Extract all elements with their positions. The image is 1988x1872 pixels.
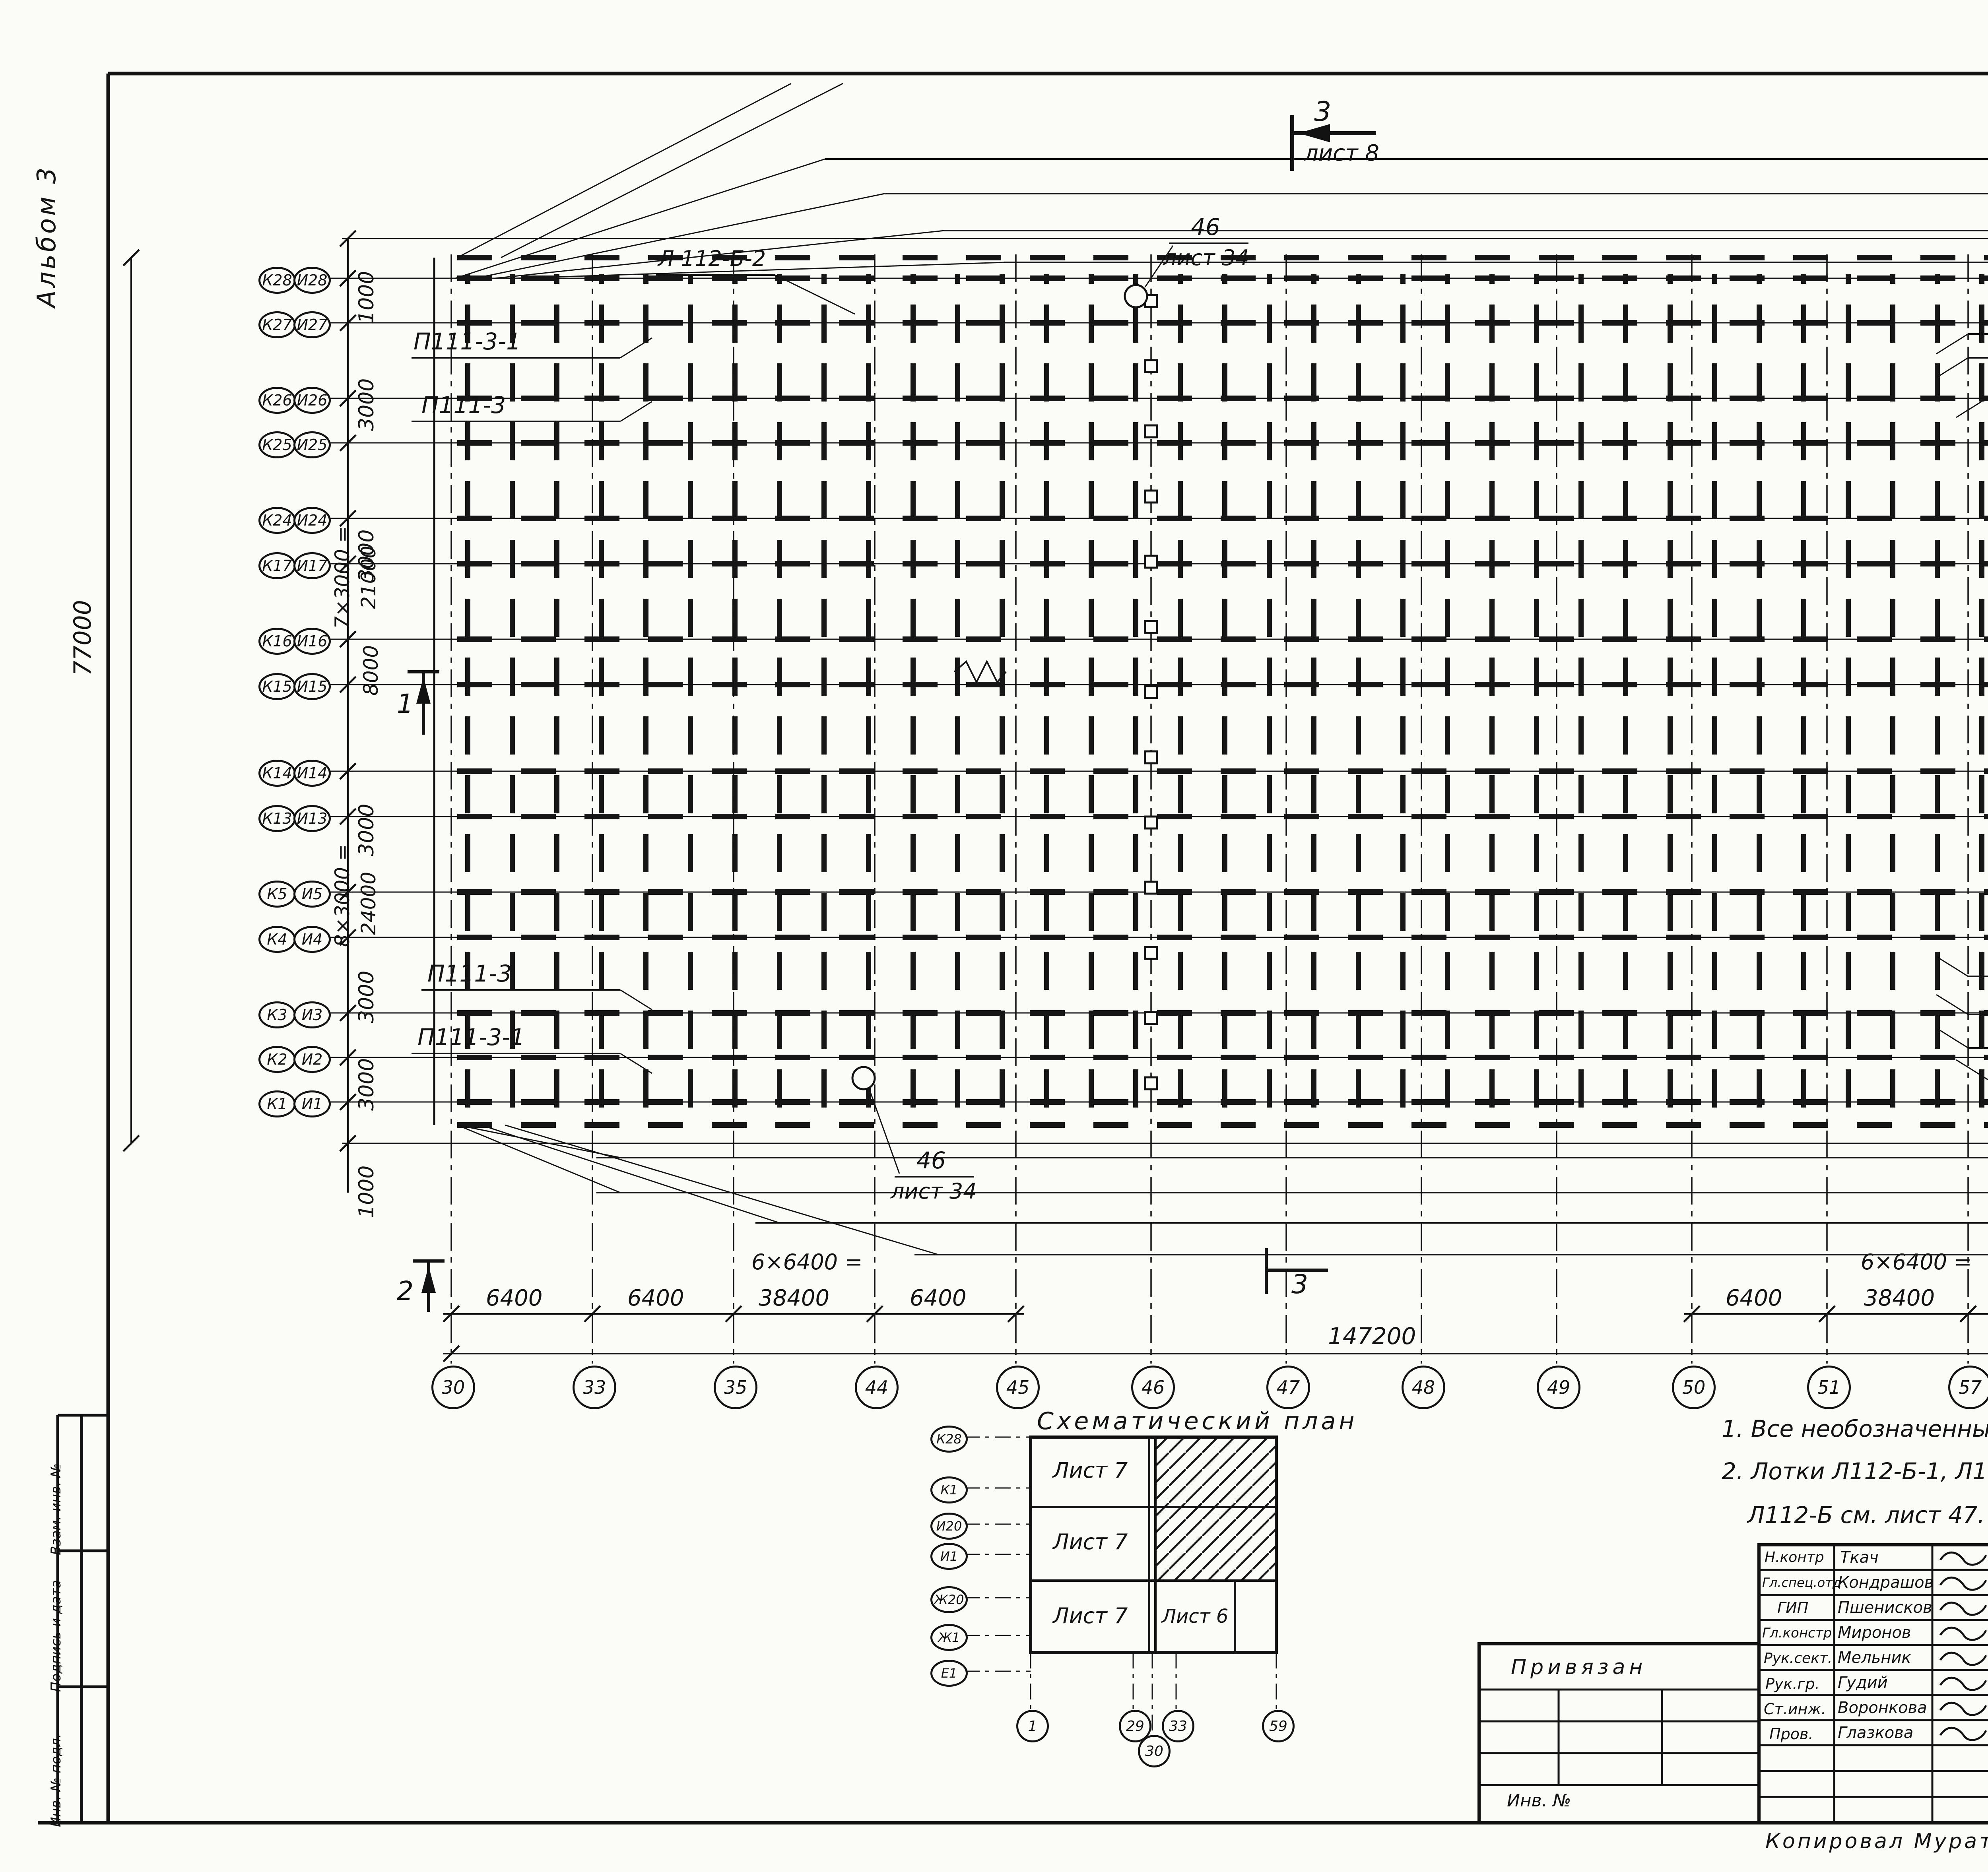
hdim-right-eq: 6×6400 = [1861,1251,1972,1273]
tb-name-1: Кондрашов [1838,1575,1934,1591]
axis-row-label: К5 [267,885,287,903]
margin-strip-top: Взам. инв. № [49,1463,63,1555]
tb-name-2: Пшенисков [1838,1600,1932,1616]
axis-col-label: 49 [1547,1377,1571,1398]
axis-row-label: К15 [262,678,292,695]
schematic-col-label: 1 [1028,1718,1037,1734]
hdim-left-1: 6400 [627,1287,684,1309]
vdim-1000-top: 1000 [356,271,377,324]
axis-col-label: 47 [1277,1377,1300,1398]
hdim-left-eq: 6×6400 = [751,1251,862,1273]
axis-col-1: 33 [573,1366,616,1409]
axis-row-label: К2 [267,1051,287,1068]
section-3-top: 3 [1314,99,1331,126]
mark-p111-3-topleft: П111-3 [421,394,506,417]
axis-row-i-5: И17 [293,552,331,579]
tb-role-3: Гл.констр [1762,1626,1832,1640]
axis-row-label: И13 [297,810,328,827]
schematic-col-0: 1 [1016,1710,1049,1742]
vdim-8x3000: 8×3000 = [332,844,352,947]
hdim-right-0: 6400 [1726,1287,1782,1309]
schematic-cell-list7-2: Лист 7 [1053,1531,1128,1553]
schematic-col-3: 33 [1162,1710,1194,1742]
hdim-right-1: 38400 [1864,1287,1935,1309]
axis-row-label: И2 [302,1051,323,1068]
tb-name-6: Воронкова [1838,1700,1927,1716]
axis-col-0: 30 [431,1366,475,1409]
axis-col-6: 47 [1266,1366,1310,1409]
tb-name-7: Глазкова [1838,1725,1913,1741]
axis-col-label: 46 [1142,1377,1165,1398]
hdim-left-2: 38400 [759,1287,829,1309]
tb-role-4: Рук.сект. [1764,1651,1832,1666]
schematic-cell-list7-1: Лист 7 [1053,1460,1128,1481]
axis-row-label: К28 [262,272,292,289]
axis-row-label: И1 [302,1095,323,1113]
schematic-row-label: Е1 [941,1666,957,1681]
axis-row-k-8: К14 [258,760,296,787]
axis-row-i-13: И2 [293,1046,331,1073]
axis-row-k-4: К24 [258,507,296,534]
axis-col-11: 57 [1948,1366,1988,1409]
section-2-left: 2 [397,1278,414,1304]
schematic-col-label: 30 [1145,1743,1163,1759]
schematic-col-label: 29 [1126,1718,1144,1734]
axis-row-label: И3 [302,1006,323,1024]
mark-p111-3-botleft: П111-3 [427,962,512,985]
axis-row-i-6: И16 [293,628,331,655]
axis-row-k-6: К16 [258,628,296,655]
axis-row-label: И5 [302,885,323,903]
schematic-cell-list6: Лист 6 [1162,1607,1228,1626]
axis-row-k-12: К3 [258,1001,296,1028]
tb-role-1: Гл.спец.отд [1762,1576,1841,1589]
vdim-24000: 24000 [359,872,379,935]
axis-row-i-11: И4 [293,926,331,953]
tb-inv-label: Инв. № [1507,1792,1571,1810]
axis-row-label: К1 [267,1095,287,1113]
tb-role-2: ГИП [1777,1600,1808,1616]
axis-row-label: К14 [262,764,292,782]
axis-col-3: 44 [855,1366,899,1409]
axis-row-k-10: К5 [258,881,296,908]
schematic-row-3: И1 [930,1543,968,1570]
axis-row-i-8: И14 [293,760,331,787]
hdim-total: 147200 [1328,1325,1416,1348]
mark-p111-3-1-topleft: П111-3-1 [414,330,521,353]
axis-col-label: 30 [442,1377,465,1398]
hdim-left-0: 6400 [486,1287,543,1309]
axis-row-i-1: И27 [293,311,331,338]
axis-row-label: К26 [262,392,292,409]
tb-name-3: Миронов [1838,1625,1911,1641]
axis-row-label: К25 [262,436,292,454]
margin-strip-bottom: Инв. № подл. [49,1734,63,1827]
axis-row-i-9: И13 [293,805,331,832]
schematic-row-label: И1 [940,1549,958,1564]
axis-row-label: И25 [297,436,328,454]
vdim-7x3000: 7×3000 = [332,526,352,629]
axis-row-label: К3 [267,1006,287,1024]
vdim-3000-c: 3000 [356,804,377,856]
axis-row-i-7: И15 [293,673,331,700]
margin-strip-middle: Подпись и дата [49,1580,63,1692]
axis-col-label: 48 [1412,1377,1435,1398]
schematic-col-label: 59 [1269,1718,1287,1734]
schematic-row-1: К1 [930,1476,968,1503]
vdim-3000-e: 3000 [356,1058,377,1111]
hdim-left-3: 6400 [910,1287,967,1309]
axis-col-7: 48 [1402,1366,1445,1409]
axis-row-label: И16 [297,632,328,650]
axis-row-label: И17 [297,557,328,574]
axis-row-i-0: И28 [293,267,331,294]
tb-bind-label: Привязан [1511,1657,1646,1678]
schematic-title: Схематический план [1037,1409,1358,1433]
axis-row-k-3: К25 [258,431,296,458]
schematic-cell-list7-3: Лист 7 [1053,1605,1128,1627]
axis-col-label: 50 [1682,1377,1706,1398]
vdim-1000-bot: 1000 [356,1166,377,1218]
axis-row-label: К27 [262,316,292,334]
tb-role-6: Ст.инж. [1764,1701,1826,1717]
mark-p111-3-1-botleft: П111-3-1 [417,1026,525,1049]
vdim-8000: 8000 [361,645,381,696]
axis-col-8: 49 [1537,1366,1580,1409]
axis-row-label: И14 [297,764,328,782]
axis-col-10: 51 [1807,1366,1851,1409]
album-label: Альбом 3 [34,165,60,308]
tb-role-0: Н.контр [1765,1550,1824,1565]
schematic-col-4: 59 [1262,1710,1295,1742]
mark-l112-b-2-topleft: Л 112-Б-2 [658,248,766,270]
schematic-row-label: К28 [936,1432,961,1447]
copied-by: Копировал Муратова [1765,1831,1988,1852]
schematic-row-label: И20 [936,1519,962,1534]
axis-row-k-5: К17 [258,552,296,579]
axis-col-label: 35 [724,1377,747,1398]
schematic-row-0: К28 [930,1426,968,1453]
schematic-row-label: Ж20 [934,1592,964,1607]
axis-col-label: 44 [865,1377,889,1398]
node-ref-top-sheet: лист 34 [1163,247,1249,269]
axis-col-5: 46 [1131,1366,1175,1409]
axis-row-i-3: И25 [293,431,331,458]
schematic-row-label: К1 [940,1482,957,1498]
note-1: 1. Все необозначенные на схеме стойки ма… [1722,1417,1988,1440]
axis-row-k-13: К2 [258,1046,296,1073]
section-3-top-sheet: лист 8 [1304,142,1379,165]
schematic-col-label: 33 [1169,1718,1187,1734]
node-ref-top-num: 46 [1191,215,1220,239]
tb-name-0: Ткач [1840,1550,1879,1565]
node-ref-bot-sheet: лист 34 [891,1181,977,1202]
vdim-21000: 21000 [359,546,379,609]
drawing-sheet: 7 Альбом 3 Взам. инв. № Подпись и дата И… [0,0,1988,1872]
schematic-col-2: 30 [1138,1735,1171,1767]
axis-row-label: И27 [297,316,328,334]
axis-col-4: 45 [996,1366,1040,1409]
axis-row-label: И4 [302,931,323,948]
axis-row-label: К4 [267,931,287,948]
vdim-77000: 77000 [71,600,95,676]
schematic-row-5: Ж1 [930,1624,968,1651]
note-2: 2. Лотки Л112-Б-1, Л112-Б-2 выполнить из… [1722,1460,1988,1483]
schematic-row-6: Е1 [930,1660,968,1687]
axis-row-k-14: К1 [258,1090,296,1117]
schematic-row-2: И20 [930,1513,968,1540]
axis-row-label: И26 [297,392,328,409]
axis-col-label: 45 [1006,1377,1030,1398]
tb-name-5: Гудий [1838,1675,1888,1691]
axis-row-i-10: И5 [293,881,331,908]
note-3: Л112-Б см. лист 47. [1747,1503,1985,1527]
axis-row-k-1: К27 [258,311,296,338]
section-1-left: 1 [397,691,414,717]
axis-col-label: 33 [583,1377,606,1398]
axis-row-k-2: К26 [258,387,296,414]
axis-row-i-12: И3 [293,1001,331,1028]
tb-role-5: Рук.гр. [1765,1676,1820,1692]
axis-row-label: И15 [297,678,328,695]
schematic-row-4: Ж20 [930,1586,968,1613]
axis-row-k-9: К13 [258,805,296,832]
node-ref-bot-num: 46 [916,1149,946,1172]
vdim-3000-a: 3000 [356,378,377,431]
axis-col-label: 57 [1959,1377,1982,1398]
axis-row-label: К17 [262,557,292,574]
section-3-bottom: 3 [1291,1271,1308,1298]
axis-row-label: И28 [297,272,328,289]
axis-col-2: 35 [714,1366,757,1409]
tb-role-7: Пров. [1769,1727,1813,1742]
axis-row-k-7: К15 [258,673,296,700]
axis-row-i-4: И24 [293,507,331,534]
axis-col-9: 50 [1672,1366,1716,1409]
axis-row-k-0: К28 [258,267,296,294]
axis-row-label: К24 [262,512,292,529]
tb-name-4: Мельник [1838,1650,1911,1666]
schematic-row-label: Ж1 [938,1630,960,1645]
axis-row-label: К13 [262,810,292,827]
vdim-3000-d: 3000 [356,971,377,1023]
axis-row-i-2: И26 [293,387,331,414]
axis-col-label: 51 [1817,1377,1841,1398]
axis-row-label: И24 [297,512,328,529]
axis-row-label: К16 [262,632,292,650]
axis-row-k-11: К4 [258,926,296,953]
axis-row-i-14: И1 [293,1090,331,1117]
